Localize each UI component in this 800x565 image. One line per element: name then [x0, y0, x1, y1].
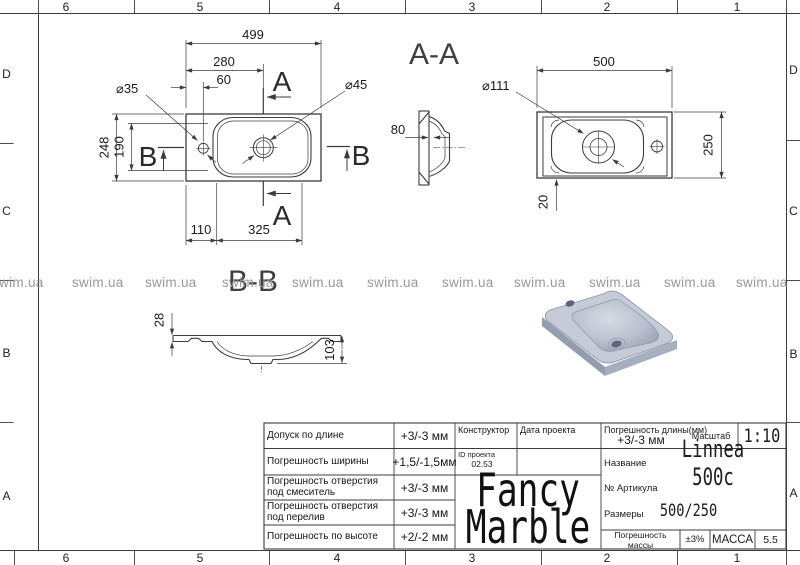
tolerance-mixer-hole-value: +3/-3 мм [394, 475, 455, 500]
dim-80: 80 [391, 122, 405, 137]
watermark: swim.ua [367, 275, 419, 290]
dia-35-label: ⌀35 [116, 81, 138, 96]
grid-row-c-left: C [0, 201, 13, 221]
dim-325: 325 [248, 222, 270, 237]
dim-250: 250 [701, 134, 716, 156]
tolerance-width-value: +1,5/-1,5мм [394, 449, 455, 475]
section-b-left-letter: B [139, 141, 158, 172]
article-label: № Артикула [604, 483, 658, 494]
dia-111-label: ⌀111 [482, 78, 510, 93]
dim-103: 103 [322, 339, 337, 361]
grid-col-1-bottom: 1 [717, 551, 757, 565]
grid-col-5-top: 5 [180, 0, 220, 13]
section-a-top-letter: A [273, 66, 292, 97]
mass-value: 5.5 [755, 530, 786, 549]
size-label: Размеры [604, 509, 643, 520]
tolerance-height-label: Погрешность по высоте [267, 525, 392, 549]
sink-3d-render [542, 291, 677, 376]
size-value: 500/250 [647, 502, 731, 520]
tolerance-width-label: Погрешность ширины [267, 449, 392, 475]
dia-45-label: ⌀45 [345, 77, 367, 92]
grid-row-b-right: B [787, 344, 800, 364]
dim-28: 28 [152, 313, 167, 327]
dim-20: 20 [536, 195, 551, 209]
tolerance-height-value: +2/-2 мм [394, 525, 455, 549]
grid-col-4-bottom: 4 [317, 551, 357, 565]
grid-row-b-left: B [0, 343, 13, 363]
plan-view: 499 280 60 ⌀35 ⌀45 248 190 110 325 A A B… [97, 27, 371, 245]
grid-col-6-top: 6 [46, 0, 86, 13]
bottom-dimensions [516, 66, 726, 211]
watermark: swim.ua [0, 275, 44, 290]
watermark: swim.ua [222, 275, 274, 290]
grid-col-6-bottom: 6 [46, 551, 86, 565]
grid-row-d-left: D [0, 64, 13, 84]
grid-col-4-top: 4 [317, 0, 357, 13]
watermark: swim.ua [442, 275, 494, 290]
tolerance-mixer-hole-label: Погрешность отверстия под смеситель [267, 475, 392, 500]
project-id-label: ID проекта [458, 450, 495, 459]
drawing-sheet: 499 280 60 ⌀35 ⌀45 248 190 110 325 A A B… [0, 0, 800, 565]
grid-row-c-right: C [787, 201, 800, 221]
tolerance-overflow-hole-value: +3/-3 мм [394, 500, 455, 525]
grid-col-3-top: 3 [452, 0, 492, 13]
mass-tolerance-label: Погрешность массы [601, 530, 680, 549]
product-name: Linnea 500c [664, 452, 762, 474]
dim-280: 280 [213, 54, 235, 69]
dim-110: 110 [191, 222, 212, 237]
bowl-outline [213, 118, 311, 178]
tolerance-length-label: Допуск по длине [267, 423, 392, 449]
mass-label: МАССА [710, 530, 755, 549]
watermark: swim.ua [145, 275, 197, 290]
section-a-bottom-letter: A [273, 200, 292, 231]
constructor-label: Конструктор [458, 425, 509, 435]
watermark: swim.ua [664, 275, 716, 290]
section-aa-label: A-A [409, 38, 459, 71]
grid-col-1-top: 1 [717, 0, 757, 13]
dim-499: 499 [242, 27, 264, 42]
tolerance-length-value: +3/-3 мм [394, 423, 455, 449]
bottom-view: 500 ⌀111 250 20 [482, 54, 726, 211]
grid-col-2-bottom: 2 [587, 551, 627, 565]
dim-60: 60 [217, 72, 231, 87]
project-date-label: Дата проекта [520, 425, 575, 435]
bottom-bowl-footprint [552, 120, 644, 173]
grid-col-2-top: 2 [587, 0, 627, 13]
dim-500: 500 [593, 54, 615, 69]
dim-248: 248 [97, 137, 112, 159]
dim-190: 190 [112, 136, 127, 158]
watermark: swim.ua [72, 275, 124, 290]
section-aa-view: A-A 80 [391, 38, 467, 185]
grid-row-a-left: A [0, 486, 13, 506]
section-b-right-letter: B [352, 140, 371, 171]
tolerance-overflow-hole-label: Погрешность отверстия под перелив [267, 500, 392, 525]
bottom-recess [543, 117, 667, 176]
watermark: swim.ua [736, 275, 788, 290]
brand-logo-line2: Marble [473, 505, 583, 549]
mass-tolerance-value: ±3% [680, 530, 710, 549]
grid-col-5-bottom: 5 [180, 551, 220, 565]
name-label: Название [604, 458, 646, 469]
watermark: swim.ua [292, 275, 344, 290]
watermark: swim.ua [589, 275, 641, 290]
grid-row-a-right: A [787, 483, 800, 503]
watermark: swim.ua [514, 275, 566, 290]
grid-row-d-right: D [787, 60, 800, 80]
